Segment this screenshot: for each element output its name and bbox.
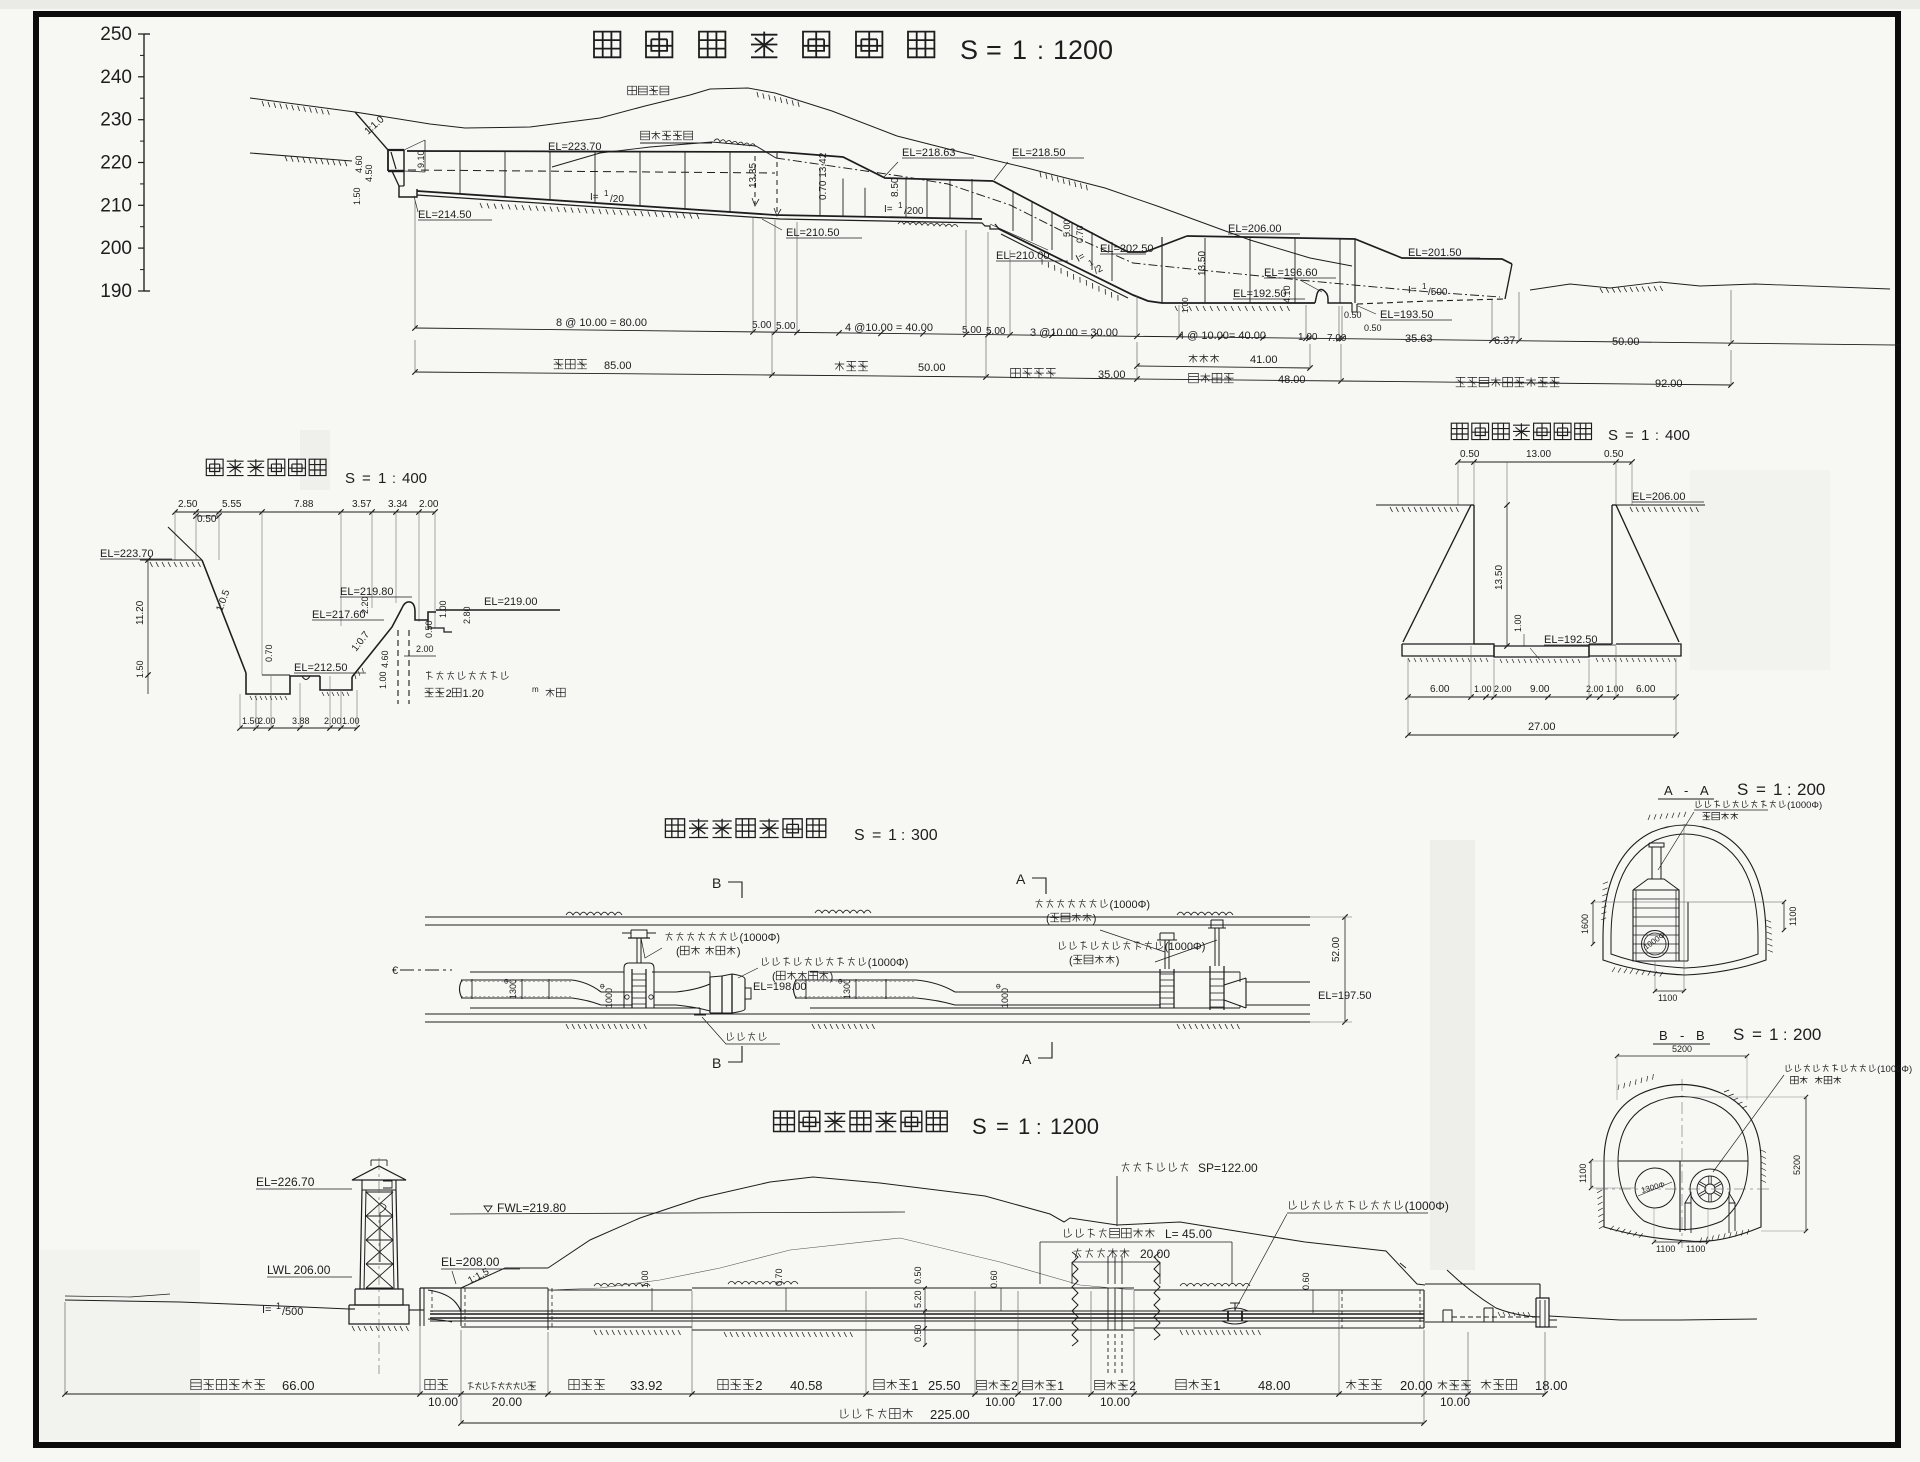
svg-text:9.10: 9.10 xyxy=(416,150,426,168)
svg-text:EL=219.80: EL=219.80 xyxy=(340,586,394,598)
svg-text:1.00: 1.00 xyxy=(1181,297,1190,313)
svg-text:2: 2 xyxy=(755,1378,762,1393)
svg-text:5.00: 5.00 xyxy=(986,326,1006,337)
svg-text:230: 230 xyxy=(100,110,132,131)
svg-text:1: 1 xyxy=(1057,1379,1064,1393)
svg-text:18.00: 18.00 xyxy=(1535,1378,1568,1393)
svg-text:5.20: 5.20 xyxy=(913,1290,923,1308)
svg-text:I=: I= xyxy=(1408,285,1417,296)
svg-text:1: 1 xyxy=(1012,35,1027,65)
svg-text:2.20: 2.20 xyxy=(360,596,370,614)
svg-text:50.00: 50.00 xyxy=(918,362,946,374)
svg-text::: : xyxy=(1787,782,1791,799)
svg-text:1: 1 xyxy=(1641,427,1649,444)
svg-text:1: 1 xyxy=(1773,780,1782,799)
svg-text:EL=201.50: EL=201.50 xyxy=(1408,247,1462,259)
svg-text:0.50: 0.50 xyxy=(913,1324,923,1342)
svg-text:2.00: 2.00 xyxy=(416,644,434,654)
svg-text:1: 1 xyxy=(1018,1114,1030,1139)
svg-text:1: 1 xyxy=(1769,1025,1778,1044)
svg-text:I=: I= xyxy=(590,192,599,203)
svg-text:1: 1 xyxy=(911,1378,918,1393)
svg-text:1100: 1100 xyxy=(1656,1244,1675,1254)
svg-text:5.00: 5.00 xyxy=(1062,219,1072,237)
svg-text:S: S xyxy=(345,470,355,487)
svg-text:11.20: 11.20 xyxy=(135,600,146,625)
svg-text:20.00: 20.00 xyxy=(1400,1378,1433,1393)
svg-text:=: = xyxy=(1625,427,1634,444)
svg-text:(1000Φ): (1000Φ) xyxy=(1877,1064,1912,1075)
svg-text:=: = xyxy=(362,470,371,487)
svg-text:3.57: 3.57 xyxy=(352,499,372,510)
svg-text:48.00: 48.00 xyxy=(1258,1378,1291,1393)
svg-text:27.00: 27.00 xyxy=(1528,721,1556,733)
svg-text:3.34: 3.34 xyxy=(388,499,408,510)
svg-text:=: = xyxy=(872,827,881,844)
svg-text:1.50: 1.50 xyxy=(242,716,260,726)
svg-text:0.60: 0.60 xyxy=(989,1270,999,1288)
svg-text:3.88: 3.88 xyxy=(292,716,310,726)
svg-text:EL=206.00: EL=206.00 xyxy=(1228,223,1282,235)
svg-text::: : xyxy=(1783,1027,1787,1044)
svg-text:=: = xyxy=(986,35,1002,65)
svg-text:/500: /500 xyxy=(1428,287,1448,298)
svg-text:EL=226.70: EL=226.70 xyxy=(256,1175,315,1189)
svg-text:66.00: 66.00 xyxy=(282,1378,315,1393)
svg-text:20.00: 20.00 xyxy=(1140,1247,1170,1261)
svg-text:220: 220 xyxy=(100,153,132,174)
svg-text:=: = xyxy=(1756,780,1766,799)
svg-text:225.00: 225.00 xyxy=(930,1407,970,1422)
svg-text:1: 1 xyxy=(898,201,903,210)
svg-text:0.70: 0.70 xyxy=(1075,225,1085,243)
svg-text:13.50: 13.50 xyxy=(1197,251,1208,276)
svg-text:200: 200 xyxy=(100,238,132,259)
svg-text:41.00: 41.00 xyxy=(1250,354,1278,366)
svg-text:): ) xyxy=(737,946,741,958)
svg-text:EL=208.00: EL=208.00 xyxy=(441,1255,500,1269)
svg-text::: : xyxy=(901,827,905,844)
svg-text:EL=210.50: EL=210.50 xyxy=(786,227,840,239)
svg-text:2: 2 xyxy=(446,688,452,700)
svg-text:A: A xyxy=(1664,783,1673,798)
svg-text:(1000Φ): (1000Φ) xyxy=(1405,1199,1449,1213)
svg-text:210: 210 xyxy=(100,195,132,216)
svg-text:50.00: 50.00 xyxy=(1612,336,1640,348)
svg-text:4.60: 4.60 xyxy=(354,155,364,173)
svg-text:33.92: 33.92 xyxy=(630,1378,663,1393)
svg-text:EL=192.50: EL=192.50 xyxy=(1233,288,1287,300)
svg-text:1.50: 1.50 xyxy=(352,187,362,205)
svg-text:=: = xyxy=(996,1114,1009,1139)
svg-text:0.70: 0.70 xyxy=(264,644,274,662)
svg-text:EL=196.60: EL=196.60 xyxy=(1264,267,1318,279)
svg-text:1: 1 xyxy=(1213,1378,1220,1393)
svg-text:B: B xyxy=(712,1055,721,1071)
svg-text:=: = xyxy=(1752,1025,1762,1044)
svg-text::: : xyxy=(392,470,396,486)
svg-text:8 @ 10.00 = 80.00: 8 @ 10.00 = 80.00 xyxy=(556,317,647,329)
svg-text:FWL=219.80: FWL=219.80 xyxy=(497,1201,566,1215)
svg-text:2.50: 2.50 xyxy=(178,499,198,510)
svg-text:(: ( xyxy=(1046,913,1050,925)
svg-text:L= 45.00: L= 45.00 xyxy=(1165,1227,1212,1241)
svg-text:250: 250 xyxy=(100,24,132,45)
svg-text:S: S xyxy=(854,827,865,844)
svg-text:/200: /200 xyxy=(904,206,924,217)
svg-text:2: 2 xyxy=(1011,1379,1018,1393)
svg-text:EL=206.00: EL=206.00 xyxy=(1632,491,1686,503)
svg-text:2.00: 2.00 xyxy=(419,499,439,510)
svg-text:400: 400 xyxy=(402,470,427,487)
svg-text:190: 190 xyxy=(100,281,132,302)
svg-text:1100: 1100 xyxy=(1788,907,1798,926)
svg-text:2.00: 2.00 xyxy=(258,716,276,726)
svg-text:2.00: 2.00 xyxy=(324,716,342,726)
svg-text:1600: 1600 xyxy=(1580,914,1590,934)
svg-text:LWL 206.00: LWL 206.00 xyxy=(267,1263,331,1277)
svg-text:EL=202.50: EL=202.50 xyxy=(1100,243,1154,255)
svg-text:92.00: 92.00 xyxy=(1655,378,1683,390)
svg-text:EL=192.50: EL=192.50 xyxy=(1544,634,1598,646)
svg-text:0.70: 0.70 xyxy=(774,1268,784,1286)
svg-text:48.00: 48.00 xyxy=(1278,374,1306,386)
svg-text:13.50: 13.50 xyxy=(1494,565,1505,590)
svg-text:5.55: 5.55 xyxy=(222,499,242,510)
svg-text:0.50: 0.50 xyxy=(913,1266,923,1284)
svg-text:1100: 1100 xyxy=(1658,993,1677,1003)
svg-text:S: S xyxy=(960,35,978,65)
svg-text:4.50: 4.50 xyxy=(364,164,374,182)
svg-text::: : xyxy=(1036,1117,1042,1139)
svg-text:EL=217.60: EL=217.60 xyxy=(312,609,366,621)
svg-text:1: 1 xyxy=(276,1301,281,1311)
svg-text:5.00: 5.00 xyxy=(776,321,796,332)
svg-text:1100: 1100 xyxy=(1686,1244,1705,1254)
svg-text:EL=218.50: EL=218.50 xyxy=(1012,147,1066,159)
svg-text:40.58: 40.58 xyxy=(790,1378,823,1393)
svg-text:(1000Φ): (1000Φ) xyxy=(740,932,781,944)
svg-text:(1000Φ): (1000Φ) xyxy=(1110,899,1151,911)
svg-text:200: 200 xyxy=(1797,780,1825,799)
svg-text:0.60: 0.60 xyxy=(1301,1272,1311,1290)
svg-text::: : xyxy=(1655,427,1659,443)
svg-text:1000: 1000 xyxy=(604,988,614,1008)
svg-text:1.00: 1.00 xyxy=(438,600,448,618)
svg-text::: : xyxy=(1037,37,1044,65)
svg-text:SP=122.00: SP=122.00 xyxy=(1198,1161,1258,1175)
svg-text:1.00: 1.00 xyxy=(1298,332,1318,343)
svg-text:7.00: 7.00 xyxy=(1327,333,1347,344)
svg-text:(: ( xyxy=(772,971,776,983)
svg-text:Φ: Φ xyxy=(504,978,511,984)
svg-text:4 @ 10.00= 40.00: 4 @ 10.00= 40.00 xyxy=(1178,330,1266,342)
svg-text:B: B xyxy=(1659,1028,1668,1043)
svg-text:13.00: 13.00 xyxy=(1526,449,1551,460)
svg-text:1.00: 1.00 xyxy=(378,671,388,689)
svg-text:/500: /500 xyxy=(282,1306,303,1318)
svg-text:-: - xyxy=(1680,1028,1684,1043)
svg-text:EL=198.00: EL=198.00 xyxy=(753,981,807,993)
svg-text:B: B xyxy=(1696,1028,1705,1043)
svg-text:25.50: 25.50 xyxy=(928,1378,961,1393)
svg-text:6.00: 6.00 xyxy=(1430,684,1450,695)
svg-text:1: 1 xyxy=(378,470,386,487)
svg-text:1: 1 xyxy=(888,827,897,844)
svg-text:2.80: 2.80 xyxy=(462,606,472,624)
svg-text:35.63: 35.63 xyxy=(1405,333,1433,345)
svg-text:I=: I= xyxy=(262,1304,271,1316)
svg-text:0.50: 0.50 xyxy=(1344,310,1362,320)
svg-text:0.50: 0.50 xyxy=(1604,449,1624,460)
svg-text:8.50: 8.50 xyxy=(890,177,901,197)
svg-text:S: S xyxy=(972,1114,987,1139)
svg-text:4.10: 4.10 xyxy=(1282,285,1292,303)
svg-text:52.00: 52.00 xyxy=(1331,937,1342,962)
svg-text:EL=212.50: EL=212.50 xyxy=(294,662,348,674)
svg-text:3 @10.00 = 30.00: 3 @10.00 = 30.00 xyxy=(1030,327,1118,339)
svg-text:400: 400 xyxy=(1665,427,1690,444)
svg-text:EL=223.70: EL=223.70 xyxy=(100,548,154,560)
svg-text:85.00: 85.00 xyxy=(604,360,632,372)
svg-text:5.00: 5.00 xyxy=(752,320,772,331)
svg-text:S: S xyxy=(1737,780,1748,799)
svg-text:0.50: 0.50 xyxy=(424,620,434,638)
svg-text:EL=193.50: EL=193.50 xyxy=(1380,309,1434,321)
svg-text:1: 1 xyxy=(1422,282,1427,291)
svg-text:4.60: 4.60 xyxy=(380,650,390,668)
svg-text:9.00: 9.00 xyxy=(1530,684,1550,695)
svg-text:5.00: 5.00 xyxy=(962,325,982,336)
svg-text:€: € xyxy=(392,965,398,977)
svg-text:35.00: 35.00 xyxy=(1098,369,1126,381)
svg-text:1.20: 1.20 xyxy=(463,688,484,700)
svg-text:): ) xyxy=(1093,913,1097,925)
svg-text:EL=214.50: EL=214.50 xyxy=(418,209,472,221)
svg-text:EL=219.00: EL=219.00 xyxy=(484,596,538,608)
svg-text:B: B xyxy=(712,875,721,891)
svg-text:240: 240 xyxy=(100,67,132,88)
svg-text:EL=218.63: EL=218.63 xyxy=(902,147,956,159)
svg-text:7.88: 7.88 xyxy=(294,499,314,510)
svg-text:1.50: 1.50 xyxy=(135,660,145,678)
svg-text:10.00: 10.00 xyxy=(1100,1395,1130,1409)
svg-text:m: m xyxy=(532,685,539,694)
svg-text:EL=210.00: EL=210.00 xyxy=(996,250,1050,262)
svg-text:5200: 5200 xyxy=(1792,1155,1802,1175)
svg-text:0.50: 0.50 xyxy=(1460,449,1480,460)
svg-text:/20: /20 xyxy=(610,194,624,205)
svg-text:6.37: 6.37 xyxy=(1494,335,1515,347)
svg-text:(1000Φ): (1000Φ) xyxy=(868,957,909,969)
svg-text:(1000Φ): (1000Φ) xyxy=(1787,800,1822,811)
svg-text:A: A xyxy=(1022,1051,1032,1067)
svg-text:1: 1 xyxy=(604,189,609,198)
svg-text:1.00 2.00: 1.00 2.00 xyxy=(1474,684,1512,694)
svg-text:-: - xyxy=(1684,783,1688,798)
svg-text:1.00: 1.00 xyxy=(640,1270,650,1288)
svg-text:0.50: 0.50 xyxy=(1364,323,1382,333)
svg-text:S: S xyxy=(1733,1025,1744,1044)
svg-text:6.00: 6.00 xyxy=(1636,684,1656,695)
svg-text:(: ( xyxy=(676,946,680,958)
svg-text:EL=223.70: EL=223.70 xyxy=(548,141,602,153)
svg-text:A: A xyxy=(1016,871,1026,887)
svg-text:1000: 1000 xyxy=(1000,988,1010,1008)
svg-text:1100: 1100 xyxy=(1578,1164,1588,1183)
svg-text:A: A xyxy=(1700,783,1709,798)
svg-text:4 @10.00 = 40.00: 4 @10.00 = 40.00 xyxy=(845,322,933,334)
svg-text:200: 200 xyxy=(1793,1025,1821,1044)
svg-text:): ) xyxy=(1116,955,1120,967)
svg-text:): ) xyxy=(830,971,834,983)
svg-text:S: S xyxy=(1608,427,1618,444)
svg-text:(: ( xyxy=(1069,955,1073,967)
svg-text:13.35: 13.35 xyxy=(748,163,759,188)
svg-text:Φ: Φ xyxy=(838,978,845,984)
svg-text:10.00: 10.00 xyxy=(428,1395,458,1409)
svg-text:I=: I= xyxy=(884,204,893,215)
svg-text:Φ: Φ xyxy=(600,983,607,989)
svg-text:1200: 1200 xyxy=(1050,1114,1099,1139)
svg-text:5200: 5200 xyxy=(1672,1044,1692,1054)
svg-text:20.00: 20.00 xyxy=(492,1395,522,1409)
svg-text:10.00: 10.00 xyxy=(985,1395,1015,1409)
svg-text:10.00: 10.00 xyxy=(1440,1395,1470,1409)
svg-text:1.00: 1.00 xyxy=(1513,614,1523,632)
svg-text:17.00: 17.00 xyxy=(1032,1395,1062,1409)
svg-text:300: 300 xyxy=(911,827,938,844)
svg-text:Φ: Φ xyxy=(996,983,1003,989)
svg-text:0.70 13.42: 0.70 13.42 xyxy=(818,152,829,200)
svg-text:1200: 1200 xyxy=(1053,35,1113,65)
svg-text:2.00 1.00: 2.00 1.00 xyxy=(1586,684,1624,694)
svg-text:2: 2 xyxy=(1129,1379,1136,1393)
